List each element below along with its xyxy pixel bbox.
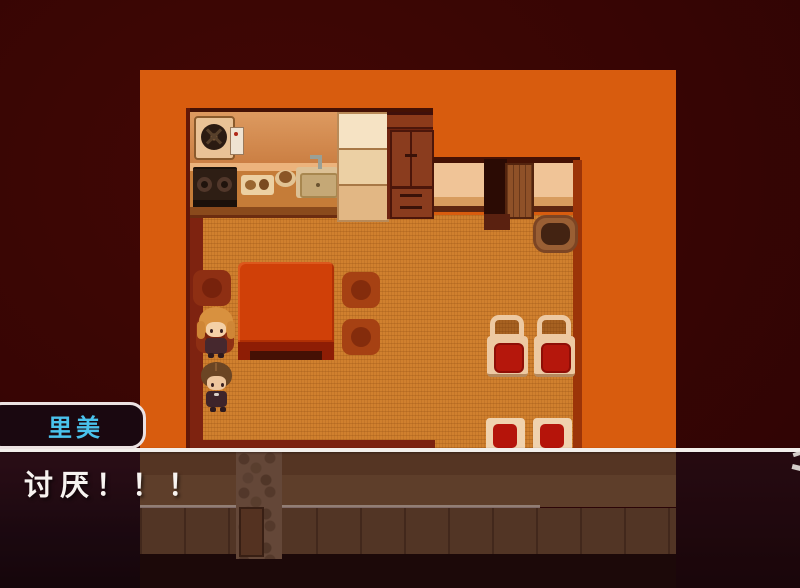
eye — [211, 383, 214, 387]
water-heater — [230, 127, 244, 155]
face — [206, 322, 226, 337]
kitchen-sink — [296, 167, 338, 198]
side-counter-left — [434, 163, 484, 212]
cabinet-doors — [390, 130, 434, 188]
wooden-door — [505, 163, 534, 219]
chair-with-back — [534, 315, 575, 378]
fan-blades-icon — [201, 124, 227, 150]
floor-cushion — [342, 319, 380, 355]
chair-seat — [486, 418, 525, 452]
character-girl-brown-hair — [200, 361, 233, 412]
faucet-icon — [318, 155, 322, 169]
name-tag-box: 里美 — [0, 402, 146, 449]
chair-with-back — [487, 315, 528, 378]
name-tag-label: 里美 — [48, 408, 104, 443]
room-right-wall-strip — [573, 160, 582, 450]
gas-stove — [193, 167, 237, 207]
basket-pot — [533, 215, 578, 253]
exhaust-fan-icon — [194, 116, 235, 160]
floor-cushion — [193, 270, 231, 306]
eye — [221, 383, 224, 387]
food-dish — [275, 170, 296, 187]
game-screen[interactable]: 里美 讨厌！！！ — [0, 0, 800, 588]
chair-cushion — [494, 343, 524, 373]
dining-table — [238, 262, 334, 360]
wooden-cabinet — [387, 112, 433, 219]
cabinet-drawers — [390, 187, 434, 219]
eye — [210, 329, 213, 333]
foot — [210, 407, 216, 412]
chair-seat — [487, 336, 528, 377]
table-foot-shadow — [250, 351, 322, 360]
refrigerator — [337, 112, 389, 222]
doorway — [484, 159, 507, 218]
entry-mat — [484, 214, 510, 230]
body — [205, 338, 227, 354]
eye — [220, 329, 223, 333]
stove-burner-icon — [197, 177, 212, 192]
body — [206, 391, 227, 407]
floor-cushion — [342, 272, 380, 308]
foot — [218, 353, 224, 358]
chair-seat — [533, 418, 572, 452]
cutting-board — [241, 175, 274, 195]
chair-cushion — [541, 343, 571, 373]
dialogue-text: 讨厌！！！ — [24, 462, 204, 504]
chair-seat — [534, 336, 575, 377]
table-top — [238, 262, 334, 342]
sink-basin — [300, 173, 338, 198]
foot — [208, 353, 214, 358]
stove-burner-icon — [217, 177, 232, 192]
foot — [220, 407, 226, 412]
character-girl-orange-hair — [198, 305, 234, 358]
cabinet-crown — [387, 115, 433, 129]
